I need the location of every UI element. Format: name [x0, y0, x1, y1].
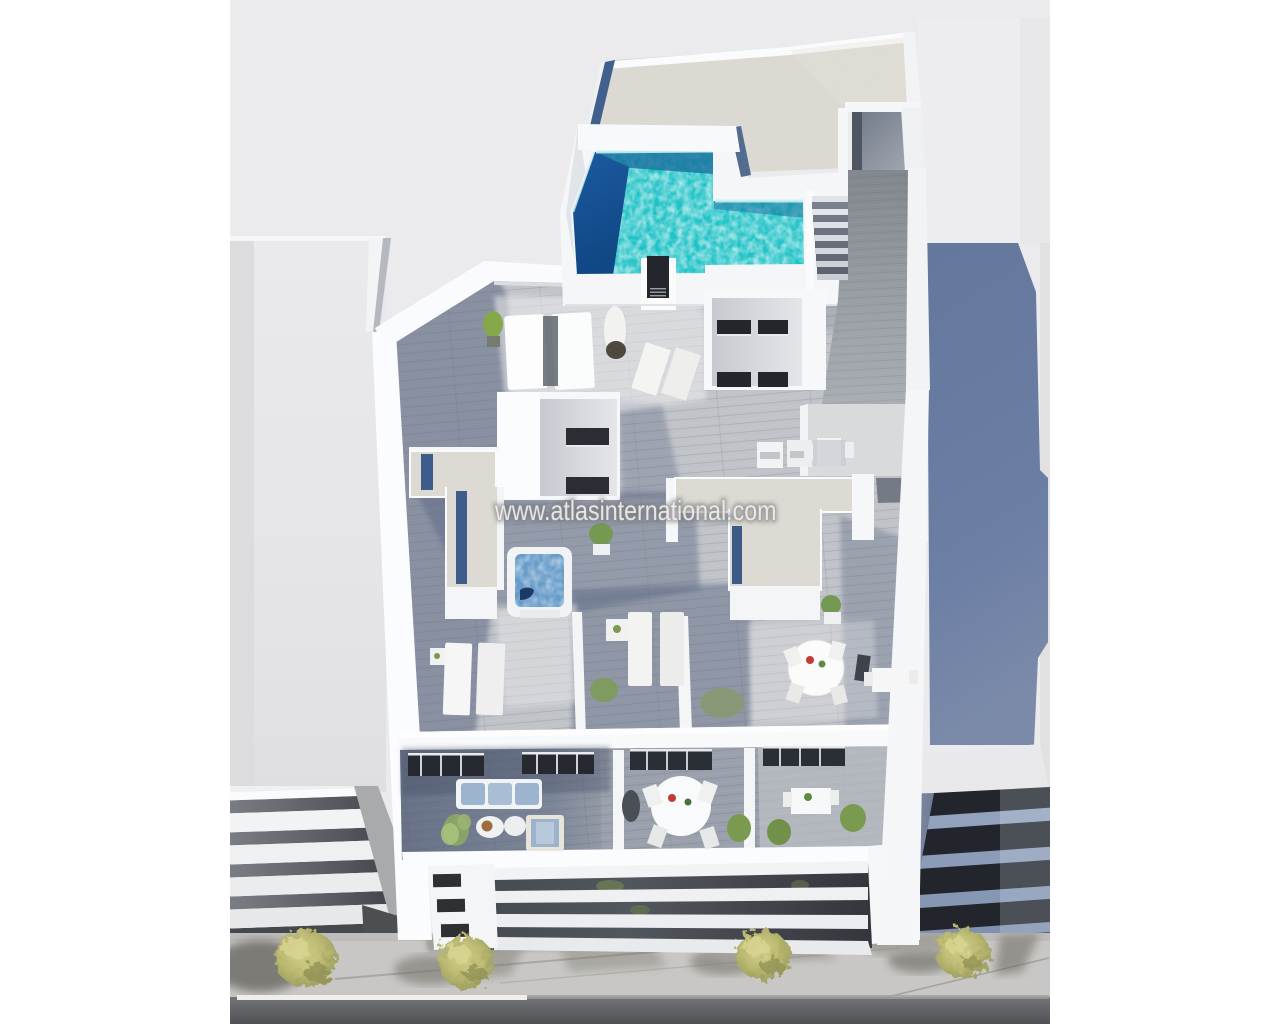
svg-text:www.atlasinternational.com: www.atlasinternational.com — [494, 496, 776, 526]
